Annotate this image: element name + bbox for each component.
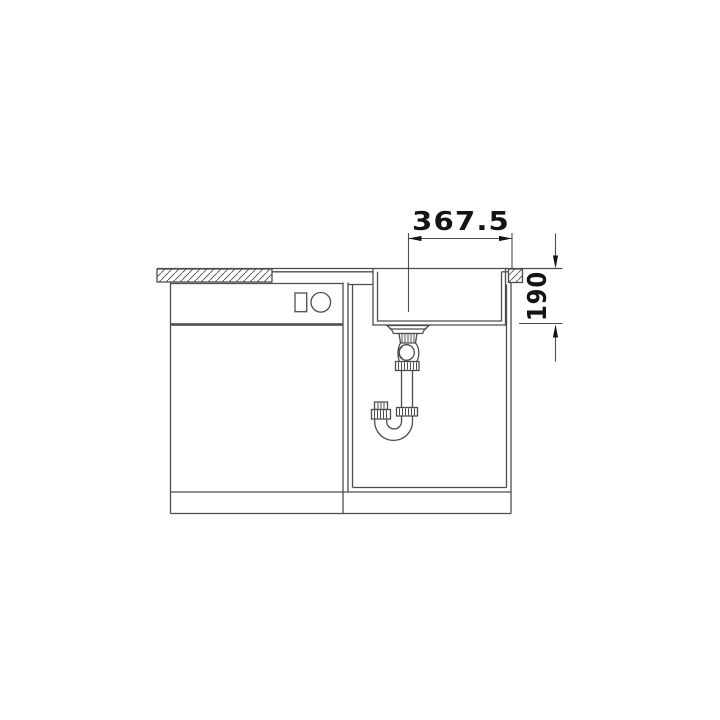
down-pipe xyxy=(402,371,413,408)
drain-trap xyxy=(372,326,430,441)
plinth xyxy=(171,492,512,514)
control-panel-knob xyxy=(311,293,331,313)
installation-drawing: 367.5 190 xyxy=(0,0,720,720)
bowl-inner-wall xyxy=(378,272,502,321)
control-panel-rect xyxy=(295,293,307,312)
width-dimension-label: 367.5 xyxy=(412,207,510,237)
coupling-upper-ribs xyxy=(399,362,417,369)
width-dimension: 367.5 xyxy=(409,207,513,312)
depth-arrow-bottom xyxy=(553,325,558,338)
elbow-right-contour xyxy=(416,343,419,362)
coupling-lower-ribs xyxy=(400,408,415,415)
sink-bowl xyxy=(373,269,506,325)
trap-left-collar-ribs xyxy=(378,403,384,409)
depth-arrow-top xyxy=(553,256,558,269)
countertop-section-left xyxy=(157,269,272,282)
left-base-cabinet xyxy=(171,283,344,514)
trap-union-nut-ribs xyxy=(375,410,387,418)
countertop-section-right xyxy=(509,269,523,283)
bowl-outer-wall xyxy=(373,269,506,325)
u-bend-inner xyxy=(387,416,402,429)
depth-dimension-label: 190 xyxy=(523,271,553,321)
drain-nut-ribs xyxy=(402,334,414,342)
u-bend-outer xyxy=(375,416,413,440)
depth-dimension: 190 xyxy=(519,234,563,362)
